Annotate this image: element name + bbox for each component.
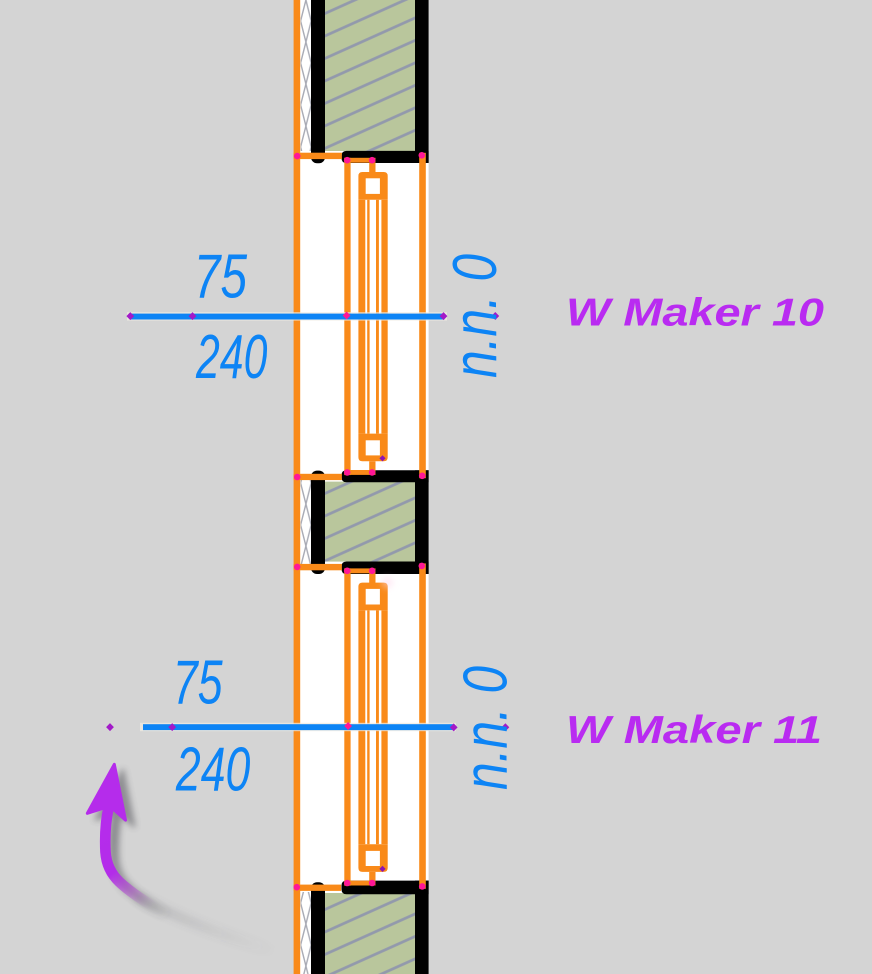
svg-text:75: 75	[173, 649, 223, 718]
svg-text:W Maker 10: W Maker 10	[566, 292, 824, 335]
svg-text:75: 75	[194, 242, 247, 311]
svg-text:n.n. 0: n.n. 0	[439, 254, 509, 378]
svg-text:240: 240	[195, 323, 267, 392]
svg-text:W Maker 11: W Maker 11	[566, 709, 822, 752]
svg-text:n.n. 0: n.n. 0	[450, 666, 520, 790]
svg-text:240: 240	[175, 735, 250, 804]
